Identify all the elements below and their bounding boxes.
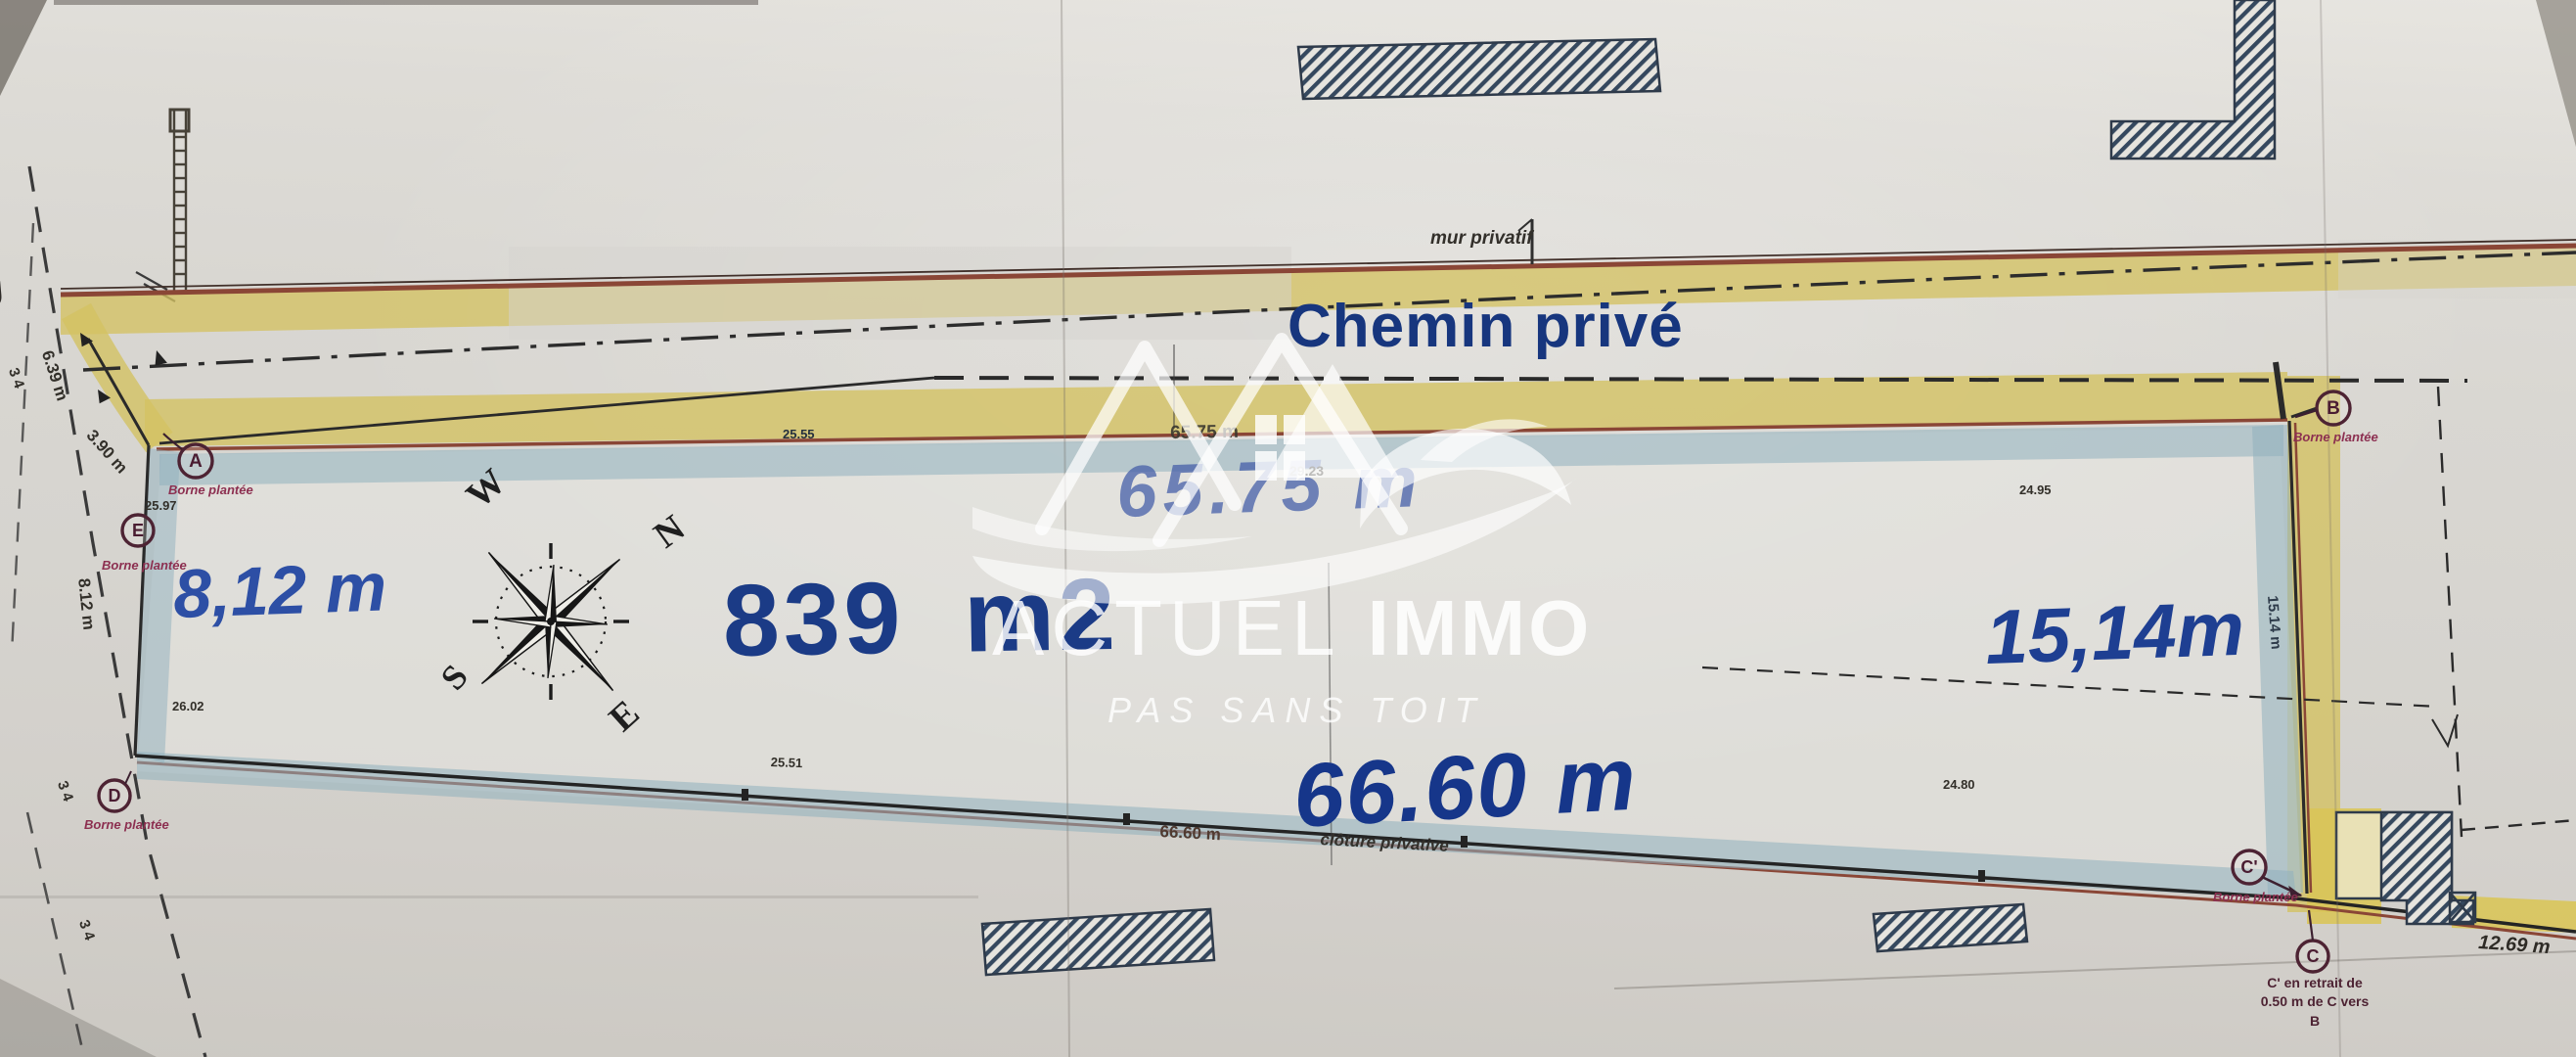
east-dimension: 15,14m	[1984, 590, 2245, 675]
borne-label-cprime: Borne plantée	[2213, 891, 2298, 903]
north-dimension-small: 65.75 m	[1170, 423, 1239, 442]
marker-letter-c: C	[2298, 947, 2327, 965]
survey-number: 24.80	[1943, 778, 1975, 791]
marker-letter-e: E	[123, 522, 153, 539]
south-dimension-small: 66.60 m	[1159, 823, 1221, 843]
watermark-brand-thin: ACTUEL	[992, 589, 1342, 667]
building-top-middle	[1298, 39, 1660, 99]
borne-label-d: Borne plantée	[84, 818, 169, 831]
borne-label-e: Borne plantée	[102, 559, 187, 572]
plan-drawing	[0, 0, 2576, 1057]
marker-letter-cprime: C'	[2235, 858, 2264, 876]
north-dimension: 65.75 m	[1115, 445, 1424, 528]
building-bottom-right-strip	[1874, 904, 2027, 951]
marker-letter-a: A	[181, 452, 210, 471]
survey-number: 24.95	[2019, 483, 2052, 496]
borne-label-a: Borne plantée	[168, 483, 253, 496]
note-c-line2: 0.50 m de C vers	[2256, 994, 2373, 1008]
survey-plan-photo: Rue Chemin privé mur privatif clôture pr…	[0, 0, 2576, 1057]
watermark-tagline: PAS SANS TOIT	[1107, 693, 1485, 728]
wall-label: mur privatif	[1430, 229, 1533, 248]
watermark-brand: ACTUEL IMMO	[992, 589, 1592, 667]
survey-number: 25.97	[145, 499, 177, 512]
rotated-dim-east: 15.14 m	[2265, 595, 2283, 650]
survey-number: 25.55	[783, 428, 815, 440]
watermark-brand-bold: IMMO	[1368, 589, 1593, 667]
note-c-line1: C' en retrait de	[2256, 976, 2373, 989]
survey-number: 29.23	[1289, 464, 1324, 478]
marker-letter-d: D	[100, 787, 129, 804]
building-top-right	[2111, 0, 2275, 159]
building-bottom-middle	[982, 909, 1214, 975]
south-dimension: 66.60 m	[1291, 734, 1640, 842]
marker-letter-b: B	[2319, 399, 2348, 418]
building-se-hatch	[2381, 812, 2473, 924]
borne-label-b: Borne plantée	[2293, 431, 2378, 443]
west-dimension: 8,12 m	[172, 552, 387, 628]
southeast-dimension: 12.69 m	[2478, 933, 2552, 957]
fence-ladder-symbol	[170, 110, 189, 292]
survey-number: 26.02	[172, 700, 204, 712]
survey-number: 25.51	[771, 756, 803, 769]
note-c-line3: B	[2256, 1014, 2373, 1028]
path-label: Chemin privé	[1288, 297, 1684, 357]
